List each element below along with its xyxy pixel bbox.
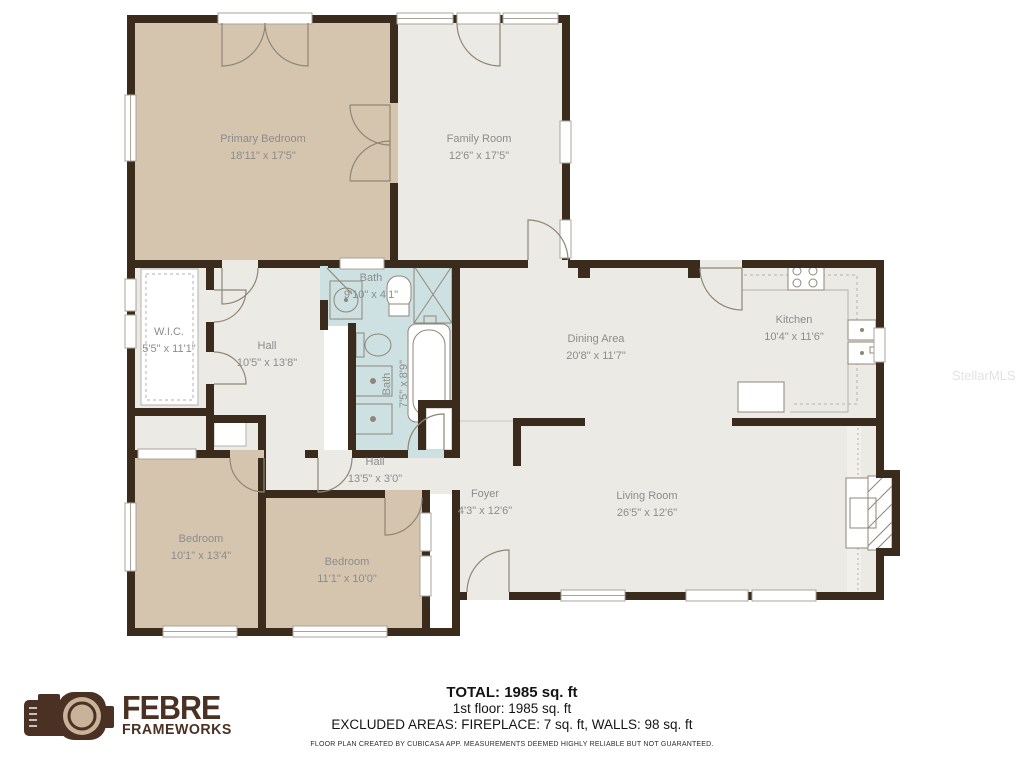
floor-plan-page: Primary Bedroom 18'11" x 17'5" Family Ro… [0, 0, 1024, 768]
window [138, 449, 196, 459]
wall-segment [452, 592, 884, 600]
opening [385, 490, 422, 498]
sink1-drain [861, 329, 864, 332]
wall-segment [892, 470, 900, 556]
wall-segment [452, 260, 460, 458]
opening [467, 592, 509, 600]
watermark: StellarMLS [952, 368, 1016, 383]
room-label-hall-upper: Hall 10'5" x 13'8" [237, 338, 297, 372]
opening [320, 266, 328, 300]
wall-segment [127, 408, 214, 416]
kitchen-island [738, 382, 784, 412]
room-label-foyer: Foyer 4'3" x 12'6" [458, 486, 512, 520]
vanity2-sink [371, 417, 376, 422]
window [560, 121, 571, 163]
brand-logo: FEBRE FRAMEWORKS [22, 684, 234, 746]
opening [700, 260, 742, 268]
window [420, 513, 431, 551]
wall-stub [688, 268, 700, 278]
wall-segment [452, 592, 460, 636]
room-label-bath-upper: Bath 9'10" x 4'1" [344, 270, 398, 304]
room-label-dining-area: Dining Area 20'8" x 11'7" [566, 331, 626, 365]
hall-closet [214, 420, 246, 446]
room-label-bedroom-left: Bedroom 10'1" x 13'4" [171, 531, 231, 565]
room-label-family-room: Family Room 12'6" x 17'5" [447, 131, 512, 165]
wall-segment [258, 415, 266, 628]
window [125, 315, 136, 348]
opening [230, 450, 264, 458]
wall-stub [578, 268, 590, 278]
opening [206, 352, 214, 384]
door-gap-primary-top [218, 13, 312, 24]
room-label-kitchen: Kitchen 10'4" x 11'6" [764, 312, 824, 346]
room-label-bedroom-right: Bedroom 11'1" x 10'0" [317, 554, 377, 588]
wall-segment [876, 426, 884, 478]
vanity1-sink [371, 379, 376, 384]
window [340, 258, 384, 269]
wall-segment [732, 418, 884, 426]
room-label-bath-lower: Bath 7'5" x 8'9" [379, 360, 413, 408]
opening [390, 103, 398, 183]
opening [206, 290, 214, 322]
window [686, 590, 748, 601]
door-gap-family-top [457, 13, 500, 24]
logo-words: FEBRE FRAMEWORKS [122, 693, 234, 738]
opening [222, 260, 258, 268]
room-label-primary-bedroom: Primary Bedroom 18'11" x 17'5" [220, 131, 306, 165]
wall-segment [876, 548, 884, 600]
window [125, 279, 136, 311]
window [874, 328, 885, 362]
logo-sub-text: FRAMEWORKS [122, 723, 232, 738]
room-label-hall-lower: Hall 13'5" x 3'0" [348, 454, 402, 488]
bath-upper-toilet-tank [389, 304, 409, 316]
logo-brand-text: FEBRE [122, 693, 225, 723]
wall-segment [513, 418, 585, 426]
opening [408, 450, 444, 458]
floor-plan-drawing [0, 0, 1024, 768]
camera-icon [22, 684, 118, 746]
wall-segment [348, 323, 356, 458]
window [752, 590, 816, 601]
window [420, 556, 431, 596]
fireplace-hearth [846, 478, 868, 548]
opening [528, 260, 568, 268]
opening [318, 450, 352, 458]
sink2-drain [861, 352, 864, 355]
fireplace-body [868, 476, 892, 550]
wall-segment [513, 418, 521, 466]
wall-segment [418, 400, 426, 450]
room-label-wic: W.I.C. 5'5" x 11'1" [142, 324, 195, 358]
room-label-living-room: Living Room 26'5" x 12'6" [616, 488, 677, 522]
vestibule-fill [130, 412, 210, 454]
